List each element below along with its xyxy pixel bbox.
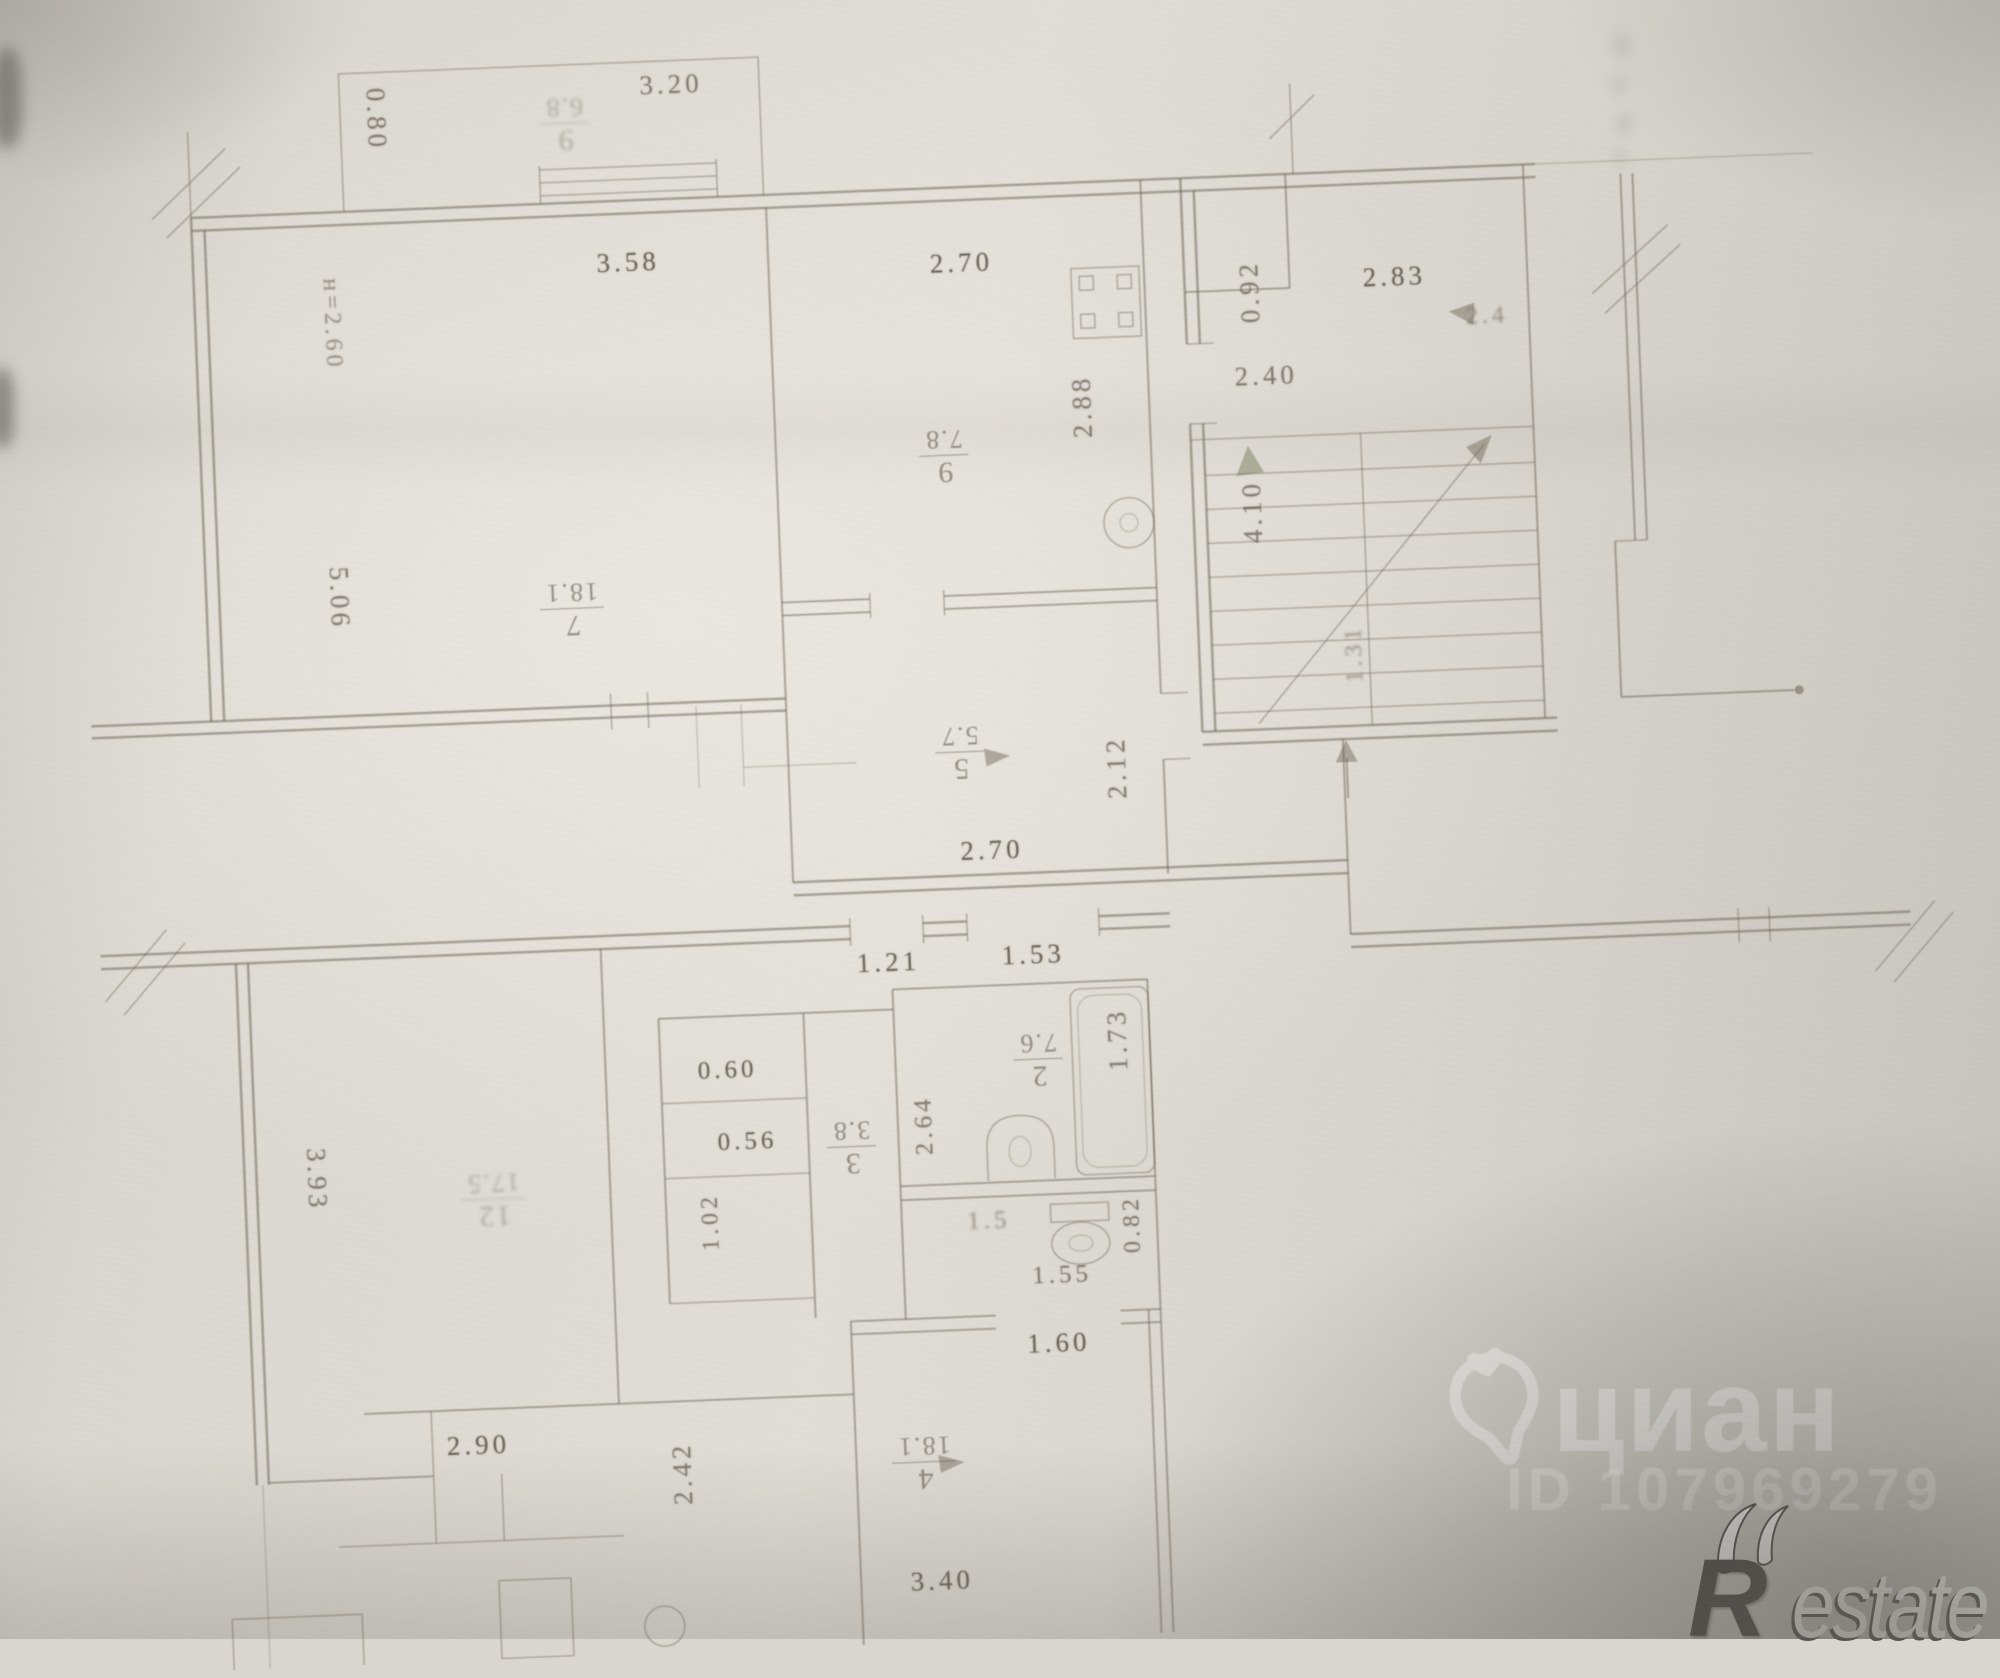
dim-wc-side: 0.82 <box>1119 1195 1145 1254</box>
dim-closet-a: 0.60 <box>697 1056 758 1083</box>
toilet-icon <box>1050 1202 1110 1265</box>
restate-initial: R <box>1688 1544 1767 1654</box>
photo-edge-mark <box>0 48 22 148</box>
dim-closet-b: 0.56 <box>717 1128 778 1155</box>
dim-entry-door: 2.4 <box>1466 303 1509 329</box>
stove-icon <box>1071 266 1142 339</box>
room-number: 3 <box>843 1147 861 1179</box>
dim-kitchen-side: 2.88 <box>1068 374 1098 438</box>
room-number: 5 <box>952 753 970 785</box>
dim-room4-door: 1.60 <box>1027 1328 1091 1358</box>
dim-wc-note: 1.5 <box>967 1207 1011 1234</box>
room-number: 9 <box>936 456 954 488</box>
bottom-left-fixtures <box>231 1573 686 1678</box>
room-label-12: 12 17.5 <box>461 1168 527 1232</box>
restate-text: estate <box>1792 1558 1987 1652</box>
room-label-hall: 5 5.7 <box>935 722 986 786</box>
room-label-4: 4 18.1 <box>892 1431 958 1495</box>
room-label-balcony: 9 6.8 <box>539 93 590 157</box>
room-area: 18.1 <box>539 578 604 611</box>
stamp-smudge <box>1596 22 1648 172</box>
room-label-3: 3 3.8 <box>826 1116 877 1180</box>
room-area: 18.1 <box>892 1431 957 1464</box>
photo-edge-mark <box>0 368 14 448</box>
room-number: 2 <box>1030 1060 1048 1092</box>
stair-direction-arrow <box>1466 435 1493 464</box>
room-label-living: 7 18.1 <box>539 578 605 642</box>
restate-logo: R estate <box>1680 1500 2000 1639</box>
room-area: 7.8 <box>919 425 969 457</box>
room-number: 9 <box>556 124 574 156</box>
dim-room4-side: 2.42 <box>668 1441 698 1505</box>
room-number: 7 <box>564 609 582 641</box>
dim-door-a: 1.21 <box>856 948 920 978</box>
dim-stair-length: 4.10 <box>1238 479 1268 543</box>
dim-balcony-width: 0.80 <box>361 87 391 151</box>
dim-stair-note: 1.31 <box>1341 624 1367 683</box>
dim-closet-side: 1.02 <box>698 1192 724 1251</box>
washbasin-icon <box>986 1114 1056 1181</box>
dim-bath-length: 1.73 <box>1103 1007 1133 1071</box>
room-area: 7.6 <box>1013 1029 1063 1061</box>
dim-room7-window: 3.58 <box>596 248 660 278</box>
room-number: 4 <box>916 1463 934 1495</box>
dim-room-bl-width: 2.90 <box>446 1431 510 1461</box>
room-area: 17.5 <box>461 1168 526 1201</box>
note-ceiling-height: н=2.60 <box>319 278 347 371</box>
dim-kitchen-width: 2.70 <box>929 248 993 278</box>
dim-hall-width: 2.70 <box>960 836 1024 866</box>
dim-room12-side: 3.93 <box>302 1148 332 1212</box>
room-label-kitchen: 9 7.8 <box>919 425 970 489</box>
dim-vestibule-width: 0.92 <box>1235 259 1265 323</box>
room-label-2: 2 7.6 <box>1013 1029 1064 1093</box>
dim-room7-side: 5.06 <box>325 566 355 630</box>
dim-door-b: 1.53 <box>1001 940 1065 970</box>
room-area: 3.8 <box>826 1116 876 1148</box>
cian-watermark: циан <box>1552 1352 1842 1470</box>
kitchen-sink-icon <box>1103 497 1155 549</box>
floorplan-photo: { "plan": { "dims": { "balcony_width": "… <box>0 0 2000 1639</box>
dim-balcony-length: 3.20 <box>639 70 703 100</box>
stair-entry-arrow <box>1335 740 1358 763</box>
hall-label-arrow <box>984 748 1011 767</box>
dim-landing-depth: 2.40 <box>1234 361 1298 391</box>
room-number: 12 <box>477 1199 512 1232</box>
landing-arrow <box>1235 445 1264 476</box>
dim-room4-width: 3.40 <box>910 1566 974 1596</box>
dim-room3-side: 2.64 <box>910 1095 937 1156</box>
room-area: 5.7 <box>935 722 985 754</box>
room-area: 6.8 <box>539 93 589 125</box>
dim-wc-width: 1.55 <box>1032 1261 1093 1288</box>
dim-hall-side: 2.12 <box>1102 735 1132 799</box>
dim-landing-width: 2.83 <box>1362 262 1426 292</box>
